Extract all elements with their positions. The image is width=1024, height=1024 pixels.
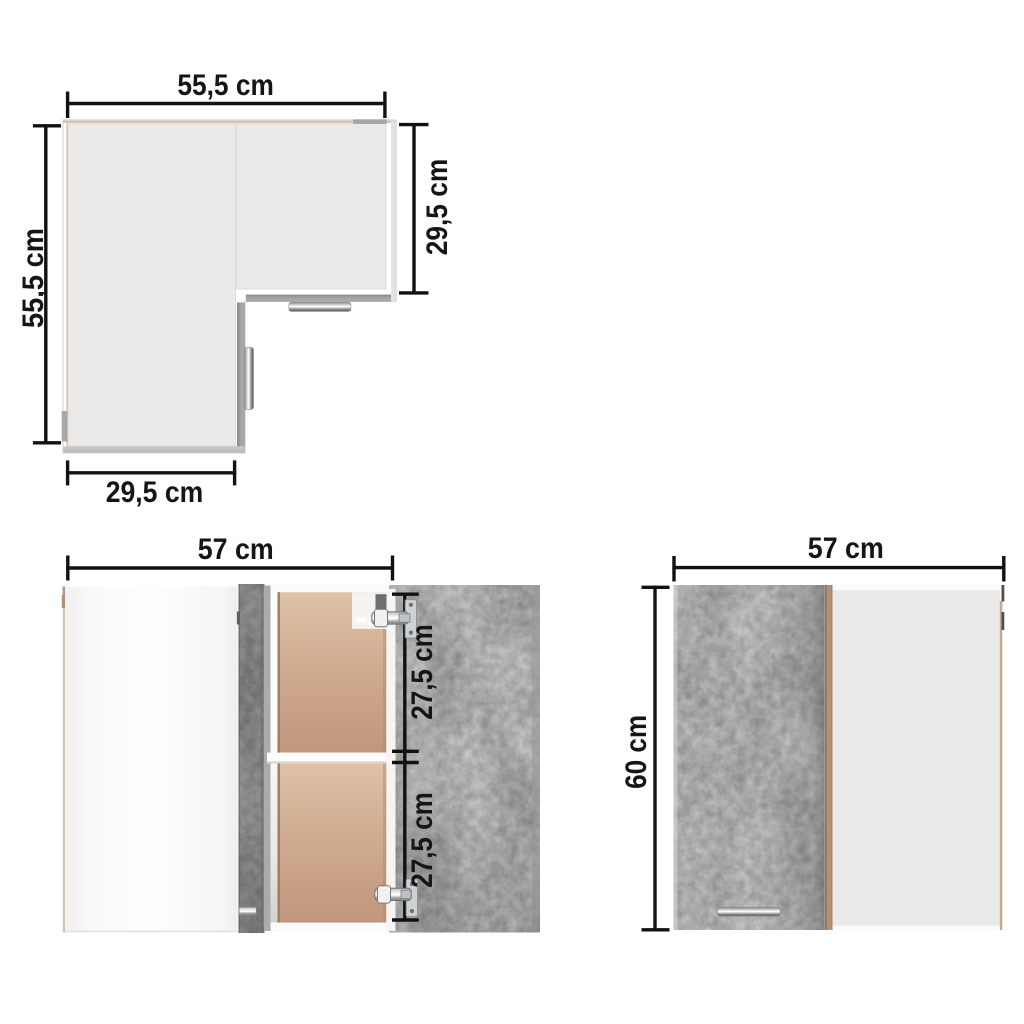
svg-text:29,5 cm: 29,5 cm (106, 476, 204, 509)
svg-text:60 cm: 60 cm (620, 715, 653, 789)
svg-text:27,5 cm: 27,5 cm (406, 624, 439, 720)
svg-text:55,5 cm: 55,5 cm (17, 228, 50, 328)
svg-text:27,5 cm: 27,5 cm (406, 792, 439, 888)
svg-text:55,5 cm: 55,5 cm (177, 69, 274, 102)
svg-text:29,5 cm: 29,5 cm (421, 159, 454, 256)
svg-text:57 cm: 57 cm (808, 532, 884, 565)
svg-text:57 cm: 57 cm (198, 533, 274, 566)
